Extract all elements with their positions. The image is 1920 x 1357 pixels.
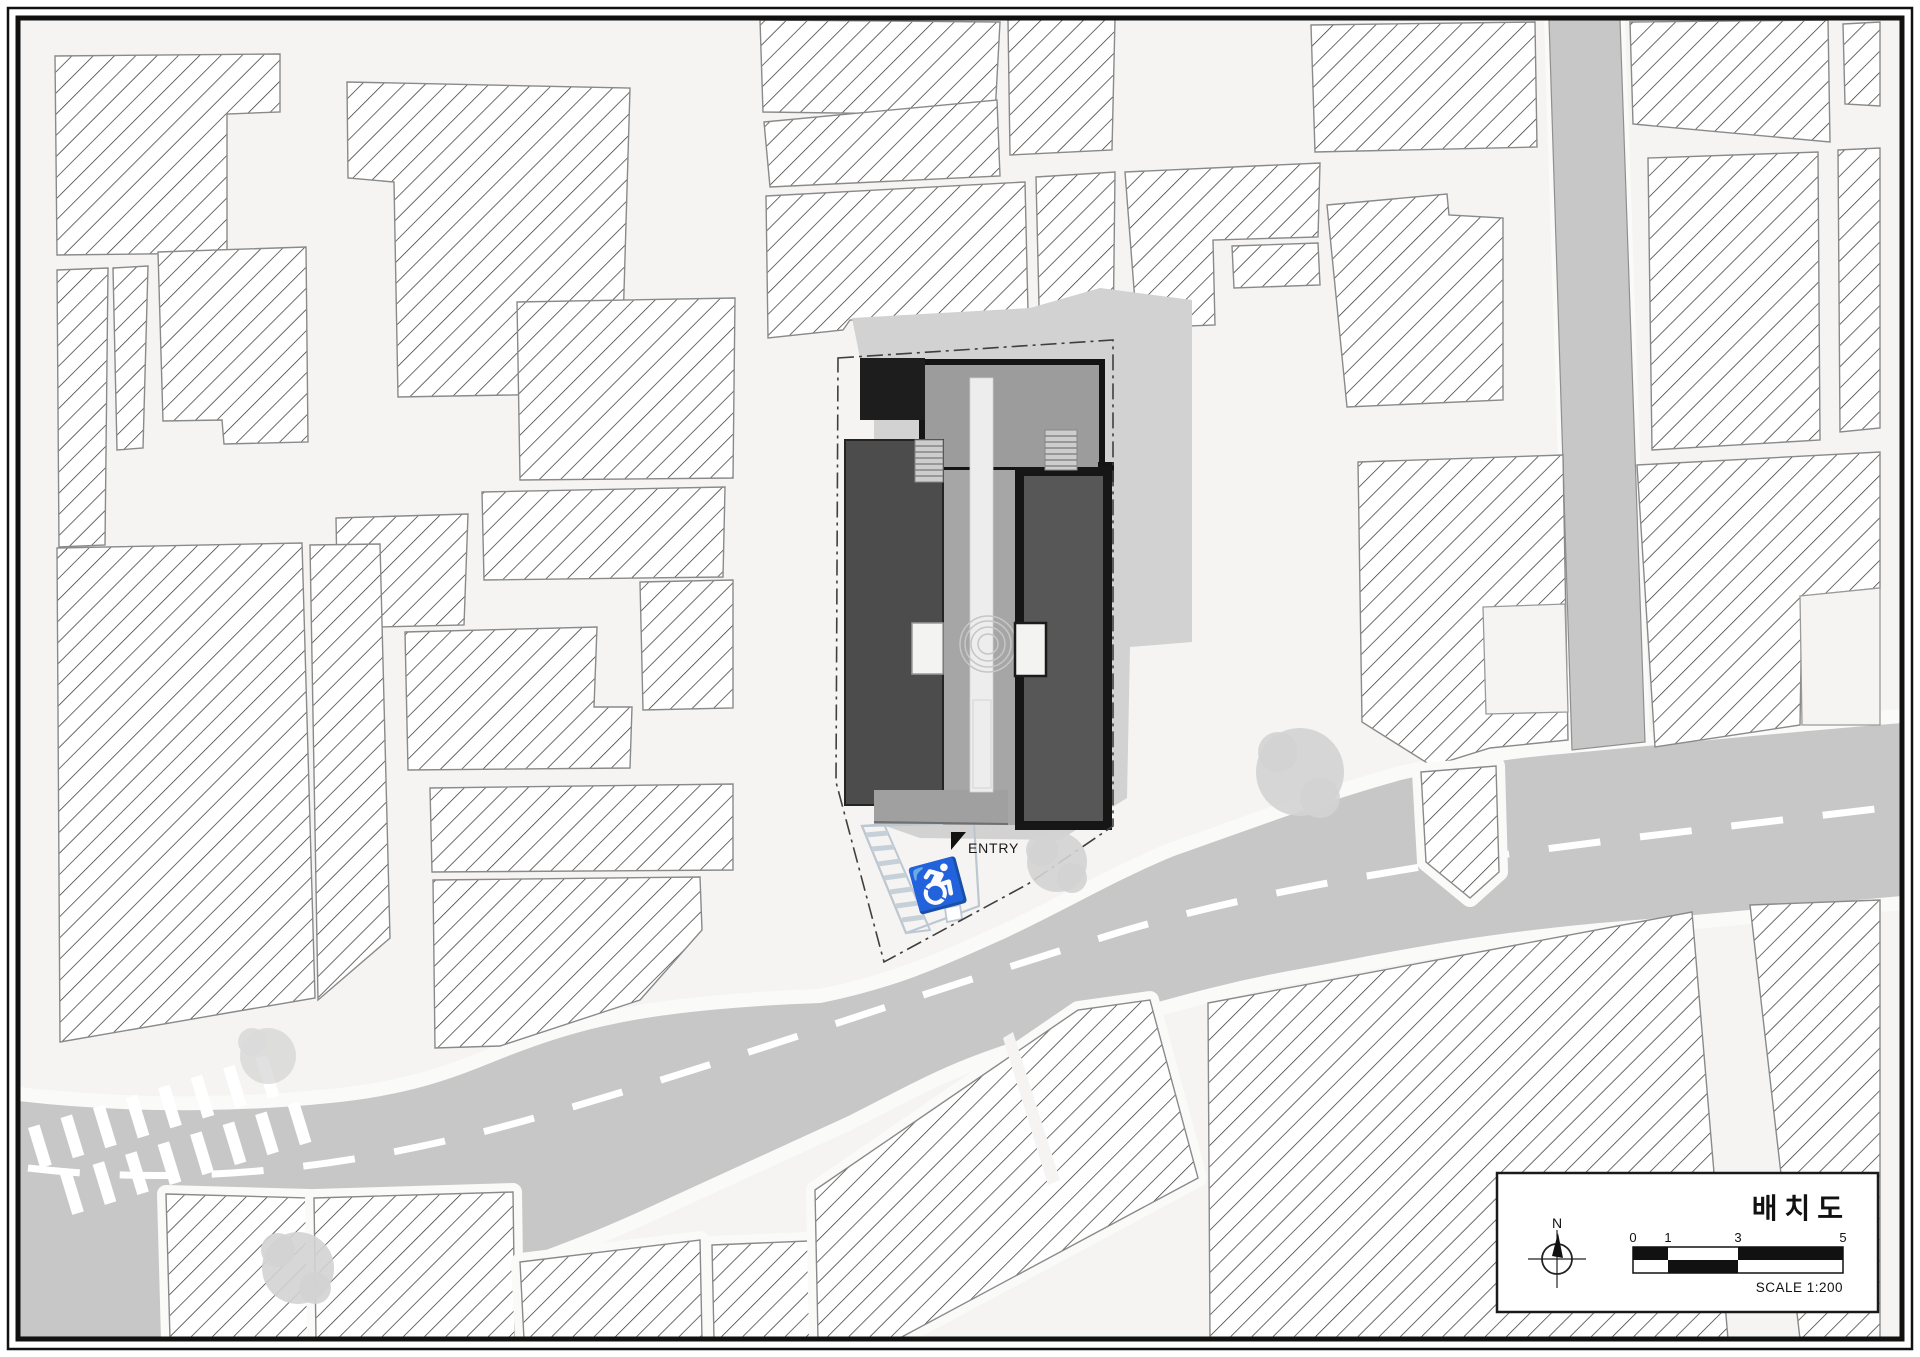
building bbox=[314, 1192, 515, 1339]
east-pavilion bbox=[1015, 623, 1046, 676]
building-with-court bbox=[1358, 455, 1568, 766]
building bbox=[1311, 22, 1537, 152]
building bbox=[1008, 18, 1115, 155]
building bbox=[158, 247, 308, 444]
building bbox=[430, 784, 733, 872]
site-plan-canvas: ♿ bbox=[0, 0, 1920, 1357]
courtyard bbox=[1800, 588, 1880, 725]
building bbox=[57, 268, 108, 547]
courtyard bbox=[1483, 604, 1568, 714]
building-with-court bbox=[1637, 452, 1880, 747]
drawing-title: 배치도 bbox=[1752, 1193, 1850, 1224]
scale-tick-3: 3 bbox=[1734, 1230, 1741, 1245]
building bbox=[1232, 243, 1320, 288]
building-south bbox=[314, 1192, 515, 1339]
scale-tick-1: 1 bbox=[1664, 1230, 1671, 1245]
core-black-mass bbox=[860, 358, 925, 420]
scale-tick-0: 0 bbox=[1629, 1230, 1636, 1245]
building-near-junction bbox=[1421, 766, 1499, 898]
building-south bbox=[520, 1240, 702, 1339]
west-pavilion bbox=[912, 623, 943, 674]
building bbox=[57, 543, 315, 1042]
building bbox=[760, 20, 1000, 115]
north-label: N bbox=[1552, 1215, 1562, 1231]
scale-tick-5: 5 bbox=[1839, 1230, 1846, 1245]
building bbox=[1838, 148, 1880, 432]
stair-east bbox=[1045, 430, 1077, 470]
building bbox=[1843, 22, 1880, 106]
building bbox=[482, 487, 725, 580]
site-plan-sheet: ♿ bbox=[0, 0, 1920, 1357]
stair-west bbox=[915, 440, 943, 482]
entry-label: ENTRY bbox=[968, 840, 1019, 856]
building bbox=[640, 580, 733, 710]
scale-label: SCALE 1:200 bbox=[1756, 1280, 1843, 1295]
building bbox=[113, 266, 148, 450]
building bbox=[517, 298, 735, 480]
building bbox=[1630, 20, 1830, 142]
entry-apron bbox=[874, 790, 1008, 824]
building bbox=[1648, 152, 1820, 450]
building bbox=[1327, 194, 1503, 407]
building bbox=[310, 544, 390, 1000]
title-block: 배치도 N 0 1 3 5 bbox=[1497, 1173, 1878, 1312]
